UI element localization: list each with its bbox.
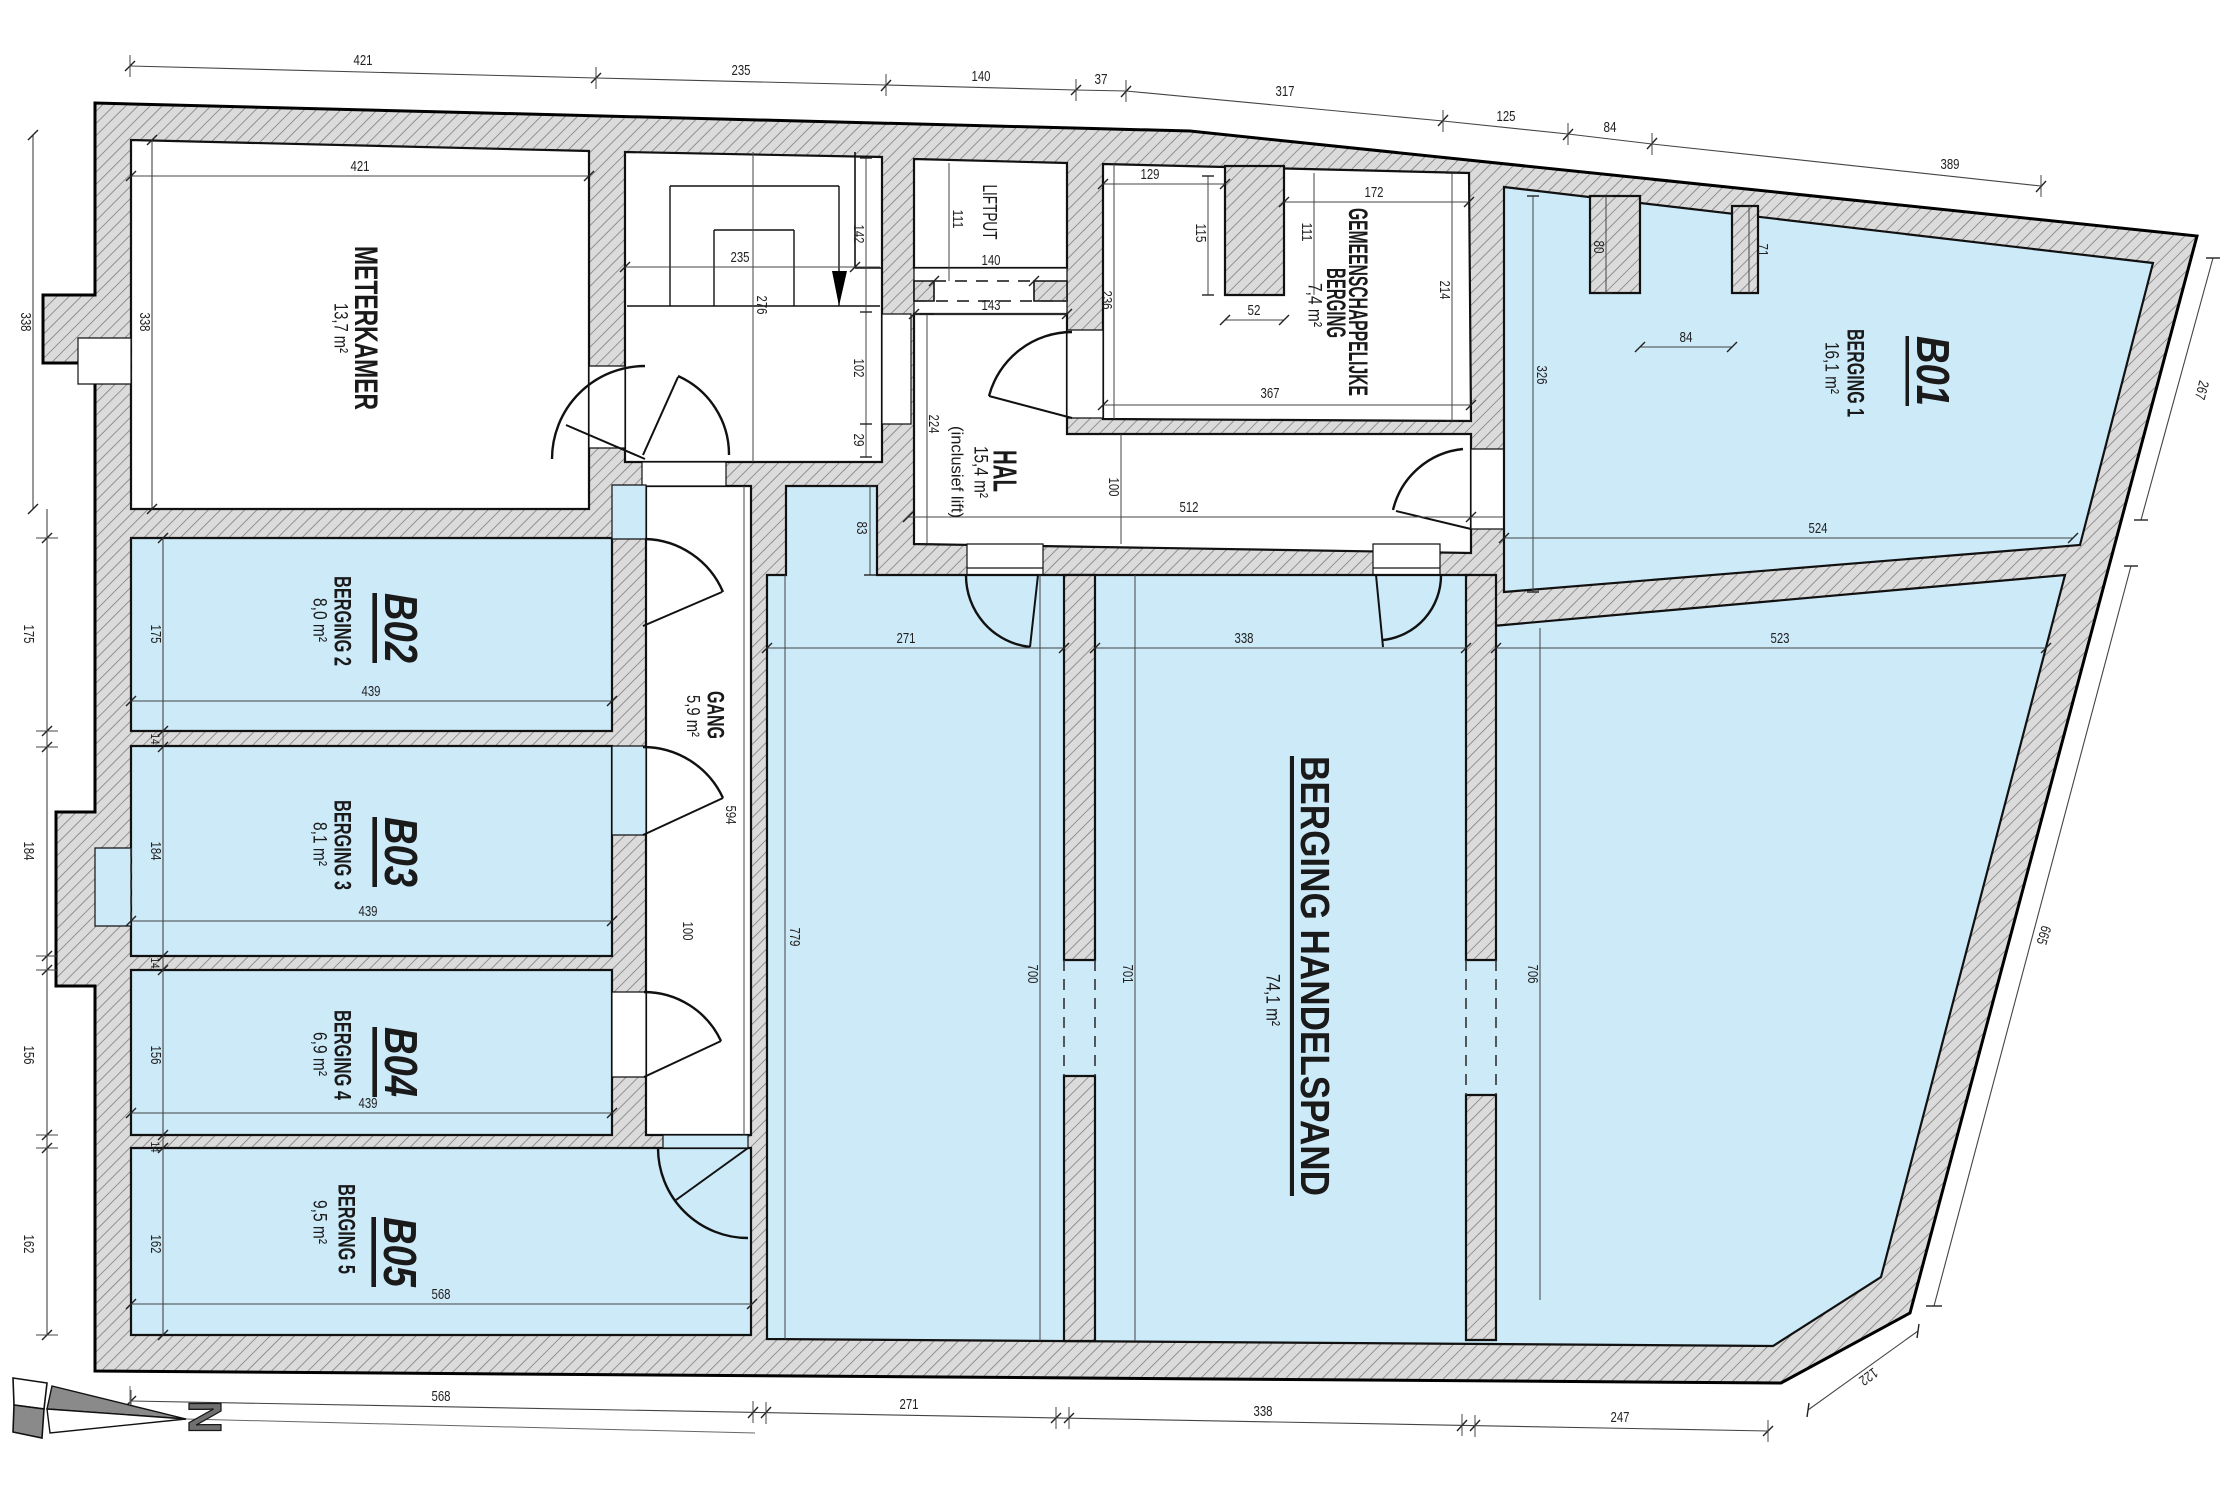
svg-text:271: 271 bbox=[900, 1397, 919, 1413]
svg-text:37: 37 bbox=[1095, 72, 1108, 88]
svg-text:100: 100 bbox=[1105, 478, 1121, 497]
svg-text:METERKAMER: METERKAMER bbox=[348, 246, 384, 410]
svg-text:235: 235 bbox=[731, 250, 750, 266]
svg-text:8,0 m²: 8,0 m² bbox=[309, 598, 330, 642]
svg-text:LIFTPUT: LIFTPUT bbox=[978, 185, 1000, 240]
svg-text:N: N bbox=[179, 1400, 231, 1433]
svg-text:568: 568 bbox=[432, 1287, 451, 1303]
svg-text:14: 14 bbox=[148, 734, 162, 745]
svg-text:162: 162 bbox=[20, 1235, 36, 1254]
svg-text:5,9 m²: 5,9 m² bbox=[683, 695, 703, 737]
svg-text:129: 129 bbox=[1141, 167, 1160, 183]
svg-text:GANG: GANG bbox=[702, 691, 729, 739]
svg-text:271: 271 bbox=[897, 631, 916, 647]
svg-text:421: 421 bbox=[354, 53, 373, 69]
svg-text:115: 115 bbox=[1192, 224, 1208, 243]
svg-text:175: 175 bbox=[20, 625, 36, 644]
svg-text:140: 140 bbox=[982, 253, 1001, 269]
svg-text:706: 706 bbox=[1524, 965, 1540, 984]
svg-text:172: 172 bbox=[1365, 185, 1384, 201]
svg-text:701: 701 bbox=[1119, 965, 1135, 984]
svg-text:523: 523 bbox=[1771, 631, 1790, 647]
svg-text:84: 84 bbox=[1604, 120, 1617, 136]
svg-text:140: 140 bbox=[972, 69, 991, 85]
svg-text:6,9 m²: 6,9 m² bbox=[309, 1032, 330, 1076]
svg-text:15,4 m²: 15,4 m² bbox=[970, 446, 991, 498]
svg-text:524: 524 bbox=[1809, 521, 1828, 537]
svg-text:389: 389 bbox=[1941, 157, 1960, 173]
svg-text:317: 317 bbox=[1276, 84, 1295, 100]
svg-text:439: 439 bbox=[362, 684, 381, 700]
svg-text:214: 214 bbox=[1436, 281, 1452, 300]
svg-text:338: 338 bbox=[1235, 631, 1254, 647]
svg-text:B05: B05 bbox=[374, 1217, 426, 1288]
svg-text:13,7 m²: 13,7 m² bbox=[330, 303, 351, 353]
svg-text:14: 14 bbox=[148, 1142, 162, 1153]
svg-text:162: 162 bbox=[147, 1235, 163, 1254]
svg-text:74,1 m²: 74,1 m² bbox=[1262, 974, 1283, 1026]
svg-text:BERGING 3: BERGING 3 bbox=[329, 800, 356, 890]
svg-text:8,1 m²: 8,1 m² bbox=[309, 822, 330, 866]
svg-text:111: 111 bbox=[949, 210, 965, 229]
svg-text:B03: B03 bbox=[375, 817, 427, 887]
svg-text:156: 156 bbox=[20, 1046, 36, 1065]
svg-text:594: 594 bbox=[722, 806, 738, 825]
svg-text:125: 125 bbox=[1497, 109, 1516, 125]
svg-text:52: 52 bbox=[1248, 303, 1261, 319]
svg-text:175: 175 bbox=[147, 625, 163, 644]
svg-text:779: 779 bbox=[786, 928, 802, 947]
svg-text:512: 512 bbox=[1180, 500, 1199, 516]
svg-text:29: 29 bbox=[850, 434, 866, 447]
svg-text:BERGING 1: BERGING 1 bbox=[1842, 329, 1869, 417]
svg-text:14: 14 bbox=[148, 958, 162, 969]
svg-text:HAL: HAL bbox=[987, 450, 1024, 492]
svg-text:9,5 m²: 9,5 m² bbox=[309, 1200, 330, 1244]
svg-text:247: 247 bbox=[1611, 1410, 1630, 1426]
svg-text:100: 100 bbox=[679, 922, 695, 941]
svg-text:568: 568 bbox=[432, 1389, 451, 1405]
svg-text:439: 439 bbox=[359, 1096, 378, 1112]
svg-text:326: 326 bbox=[1533, 366, 1549, 385]
svg-text:184: 184 bbox=[147, 842, 163, 861]
svg-text:367: 367 bbox=[1261, 386, 1280, 402]
svg-text:102: 102 bbox=[850, 359, 866, 378]
svg-text:BERGING 4: BERGING 4 bbox=[329, 1010, 356, 1100]
svg-text:(inclusief lift): (inclusief lift) bbox=[948, 426, 967, 518]
svg-text:142: 142 bbox=[850, 225, 866, 244]
svg-text:BERGING 5: BERGING 5 bbox=[333, 1184, 360, 1274]
svg-text:84: 84 bbox=[1680, 330, 1693, 346]
svg-text:BERGING 2: BERGING 2 bbox=[329, 576, 356, 666]
svg-text:338: 338 bbox=[1254, 1404, 1273, 1420]
svg-text:235: 235 bbox=[732, 63, 751, 79]
svg-text:B01: B01 bbox=[1907, 336, 1959, 406]
svg-text:80: 80 bbox=[1590, 241, 1606, 254]
svg-text:421: 421 bbox=[351, 159, 370, 175]
svg-text:439: 439 bbox=[359, 904, 378, 920]
svg-text:71: 71 bbox=[1754, 244, 1770, 257]
svg-text:83: 83 bbox=[853, 522, 869, 535]
svg-text:16,1 m²: 16,1 m² bbox=[1821, 342, 1842, 394]
svg-text:7,4 m²: 7,4 m² bbox=[1304, 283, 1325, 327]
svg-text:BERGING: BERGING bbox=[1321, 268, 1351, 338]
svg-text:700: 700 bbox=[1024, 965, 1040, 984]
svg-text:B04: B04 bbox=[375, 1027, 427, 1097]
svg-text:B02: B02 bbox=[375, 593, 427, 663]
svg-text:224: 224 bbox=[925, 415, 941, 434]
svg-text:143: 143 bbox=[982, 298, 1001, 314]
svg-text:236: 236 bbox=[1098, 291, 1114, 310]
svg-text:184: 184 bbox=[20, 842, 36, 861]
svg-text:338: 338 bbox=[17, 313, 33, 332]
svg-text:156: 156 bbox=[147, 1046, 163, 1065]
svg-text:111: 111 bbox=[1298, 223, 1314, 242]
svg-text:338: 338 bbox=[136, 313, 152, 332]
svg-text:BERGING HANDELSPAND: BERGING HANDELSPAND bbox=[1292, 756, 1338, 1196]
svg-text:276: 276 bbox=[753, 296, 769, 315]
